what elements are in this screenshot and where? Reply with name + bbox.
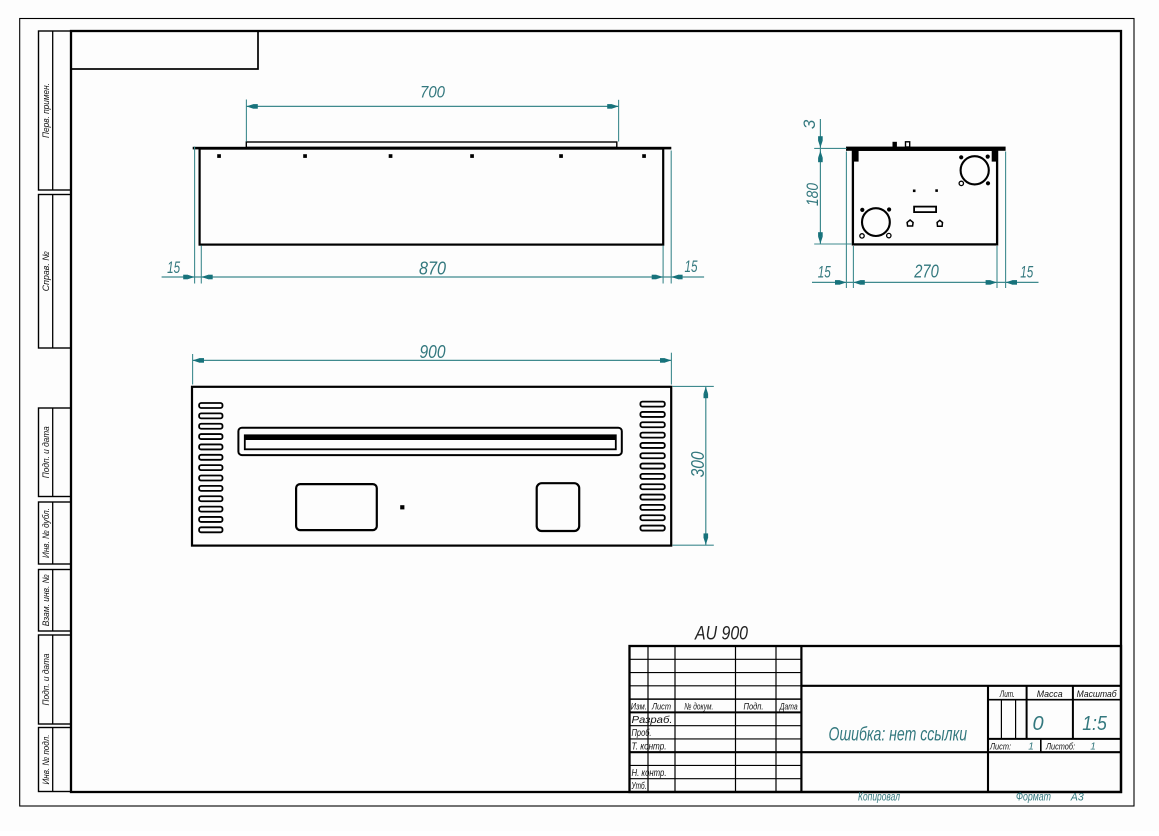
svg-text:AU 900: AU 900 <box>694 624 748 645</box>
svg-text:Подп.: Подп. <box>744 702 764 713</box>
svg-text:3: 3 <box>800 119 819 129</box>
svg-text:Изм.: Изм. <box>631 702 647 713</box>
svg-text:Проб.: Проб. <box>632 727 652 739</box>
svg-text:Перв. примен.: Перв. примен. <box>41 83 52 138</box>
svg-text:15: 15 <box>1020 262 1033 281</box>
svg-text:900: 900 <box>420 342 446 362</box>
svg-text:Разраб.: Разраб. <box>632 714 673 726</box>
svg-text:270: 270 <box>913 262 938 282</box>
svg-text:300: 300 <box>688 451 708 477</box>
svg-text:№ докум.: № докум. <box>684 702 713 713</box>
svg-text:Масштаб: Масштаб <box>1077 689 1118 700</box>
svg-text:Т. контр.: Т. контр. <box>632 741 667 752</box>
svg-text:Дата: Дата <box>779 702 798 713</box>
svg-text:15: 15 <box>685 257 698 276</box>
svg-text:700: 700 <box>420 83 445 102</box>
svg-text:Масса: Масса <box>1037 689 1063 700</box>
svg-text:Листоб:: Листоб: <box>1045 742 1075 753</box>
svg-text:1:5: 1:5 <box>1082 713 1107 735</box>
svg-text:Лит.: Лит. <box>999 689 1015 700</box>
svg-text:Инв. № подл.: Инв. № подл. <box>41 735 52 785</box>
svg-text:Лист: Лист <box>651 702 671 713</box>
svg-text:Формат: Формат <box>1016 792 1051 804</box>
svg-text:Копировал: Копировал <box>858 792 900 804</box>
svg-text:15: 15 <box>818 262 831 281</box>
svg-text:Справ. №: Справ. № <box>41 251 52 291</box>
svg-text:Подп. и дата: Подп. и дата <box>41 654 52 706</box>
svg-text:15: 15 <box>167 258 180 277</box>
svg-text:А3: А3 <box>1070 792 1085 804</box>
svg-text:Взам. инв. №: Взам. инв. № <box>41 574 52 626</box>
svg-text:Подп. и дата: Подп. и дата <box>41 426 52 478</box>
svg-text:Лист:: Лист: <box>989 742 1011 753</box>
svg-text:180: 180 <box>803 183 822 206</box>
svg-text:1: 1 <box>1028 742 1034 753</box>
svg-text:1: 1 <box>1090 742 1096 753</box>
svg-text:0: 0 <box>1032 713 1043 735</box>
svg-text:Утб.: Утб. <box>631 780 647 792</box>
svg-text:Инв. № дубл.: Инв. № дубл. <box>41 508 52 558</box>
svg-text:Н. контр.: Н. контр. <box>632 768 667 779</box>
svg-text:870: 870 <box>419 258 446 278</box>
svg-text:Ошибка: нет ссылки: Ошибка: нет ссылки <box>829 724 968 746</box>
